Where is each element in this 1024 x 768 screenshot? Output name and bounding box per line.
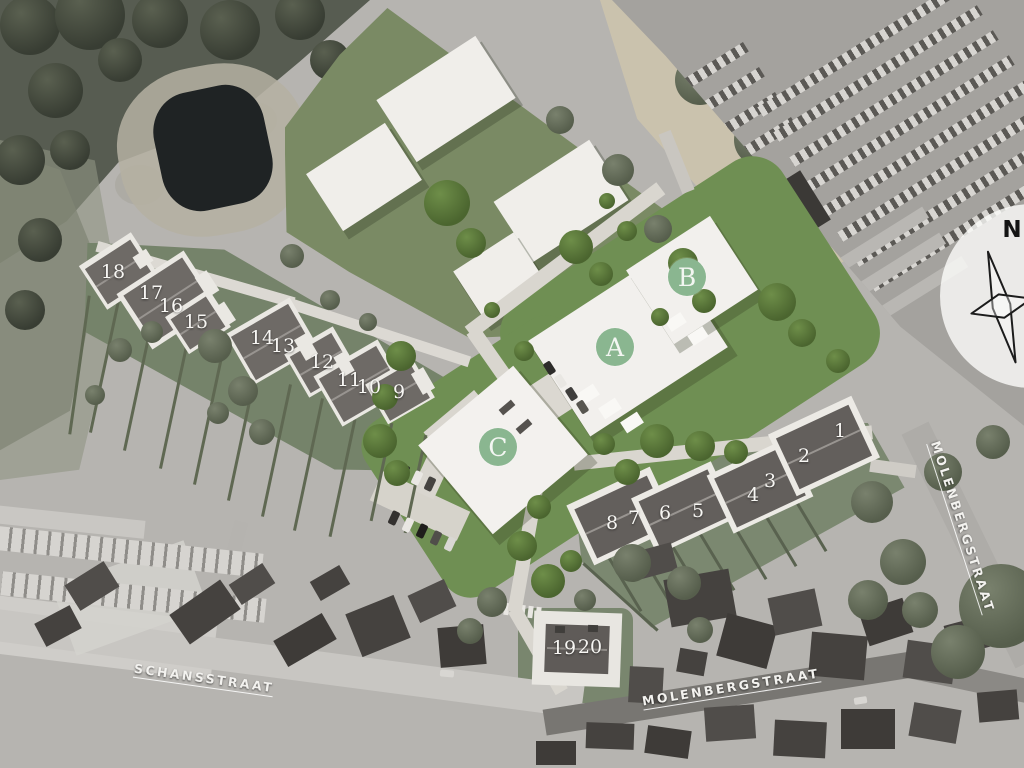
tree [574, 589, 596, 611]
village-roof [628, 666, 664, 704]
village-roof [808, 632, 868, 681]
tree [851, 481, 893, 523]
tree [560, 550, 582, 572]
village-roof [908, 702, 961, 744]
tree [320, 290, 340, 310]
tree [18, 218, 62, 262]
site-plan-aerial-map: 1234567891011121314151617181920ABCSCHANS… [0, 0, 1024, 768]
tree [484, 302, 500, 318]
tree [384, 460, 410, 486]
tree [198, 329, 232, 363]
tree [602, 154, 634, 186]
tree [589, 262, 613, 286]
tree [546, 106, 574, 134]
tree [141, 321, 163, 343]
tree [85, 385, 105, 405]
tree [200, 0, 260, 60]
tree [514, 341, 534, 361]
car [853, 696, 867, 705]
tree [372, 384, 398, 410]
tree [668, 248, 698, 278]
tree [758, 283, 796, 321]
tree [687, 617, 713, 643]
tree [692, 289, 716, 313]
tree [826, 349, 850, 373]
tree [108, 338, 132, 362]
north-compass: N [940, 204, 1024, 388]
village-roof [977, 689, 1019, 722]
tree [924, 453, 962, 491]
tree [359, 313, 377, 331]
tree [902, 592, 938, 628]
tree [593, 433, 615, 455]
tree [477, 587, 507, 617]
tree [28, 63, 83, 118]
village-roof [841, 709, 895, 749]
tree [249, 419, 275, 445]
tree [363, 424, 397, 458]
chimney [555, 625, 565, 632]
village-roof [310, 565, 350, 601]
tree [207, 402, 229, 424]
tree [848, 580, 888, 620]
village-roof [345, 595, 410, 657]
tree [456, 228, 486, 258]
tree [386, 341, 416, 371]
tree [931, 625, 985, 679]
tree [280, 244, 304, 268]
village-roof [768, 588, 823, 635]
tree [507, 531, 537, 561]
village-roof [536, 741, 576, 765]
tree [640, 424, 674, 458]
chimney [588, 624, 598, 631]
tree [976, 425, 1010, 459]
tree [614, 459, 640, 485]
car-row [773, 5, 982, 142]
tree [457, 618, 483, 644]
car-row [805, 55, 1014, 192]
north-label: N [1002, 217, 1021, 243]
tree [5, 290, 45, 330]
village-roof [644, 725, 691, 759]
tree [685, 431, 715, 461]
tree [424, 180, 470, 226]
village-roof [586, 722, 635, 750]
village-roof [704, 704, 756, 741]
tree [617, 221, 637, 241]
tree [880, 539, 926, 585]
tree [599, 193, 615, 209]
tree [644, 215, 672, 243]
crosswalk [527, 606, 533, 619]
tree [667, 566, 701, 600]
tree [98, 38, 142, 82]
tree [50, 130, 90, 170]
tree [613, 544, 651, 582]
tree [651, 308, 669, 326]
tree [228, 376, 258, 406]
car [387, 510, 400, 526]
tree [724, 440, 748, 464]
car-row [821, 80, 1024, 217]
tree [788, 319, 816, 347]
village-roof [676, 648, 708, 676]
tree [531, 564, 565, 598]
car [440, 669, 455, 677]
village-roof [716, 613, 778, 669]
car-row [757, 0, 966, 116]
car-row [789, 30, 998, 167]
tree [559, 230, 593, 264]
tree [527, 495, 551, 519]
village-roof [773, 720, 827, 759]
